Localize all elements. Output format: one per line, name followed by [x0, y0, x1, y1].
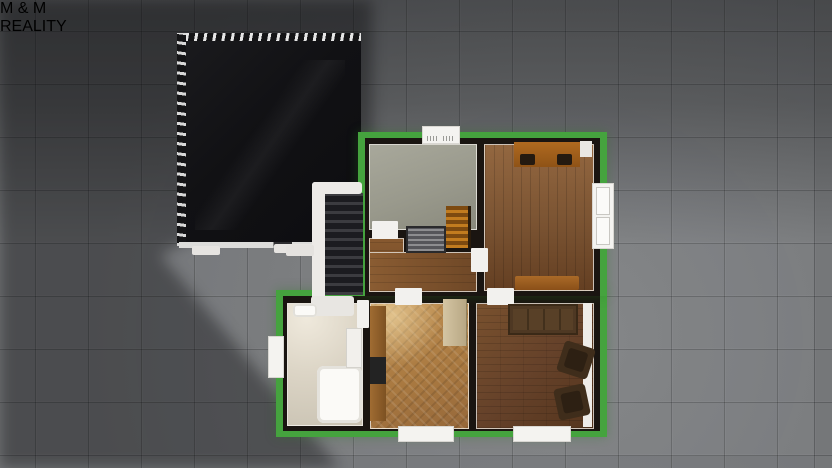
roof-ridge-trim-left	[177, 33, 186, 246]
bedroom-window	[592, 183, 614, 249]
bench	[515, 276, 579, 290]
bedroom-wall-highlight	[580, 141, 592, 157]
exterior-stairs-railing-left	[312, 182, 325, 302]
floorplan-render-scene: M & M REALITY	[0, 0, 832, 468]
kitchen-corner-counter	[440, 386, 467, 430]
kitchen-door	[395, 288, 422, 305]
kitchen-tall-cabinet	[443, 299, 467, 346]
brand-letter-m-right: M	[33, 0, 46, 17]
window-pane	[596, 187, 610, 215]
roof-ridge-trim-top	[177, 33, 361, 41]
sofa-cushions	[513, 309, 573, 330]
chair	[557, 154, 572, 165]
living-room-window	[513, 426, 571, 442]
brand-logo-wordmark: M & M	[0, 0, 67, 18]
sink	[293, 304, 317, 317]
brand-logo: M & M REALITY	[0, 0, 67, 36]
bedroom-door	[471, 248, 488, 272]
interior-stairs-down	[406, 226, 446, 253]
exterior-stairs-ledge	[286, 245, 314, 256]
gray-room-window	[422, 126, 460, 144]
interior-stairs-up	[446, 206, 471, 248]
living-room-door	[487, 288, 514, 305]
brand-reality-banner: REALITY	[0, 18, 67, 36]
exterior-stairs	[325, 193, 363, 295]
bathroom-cabinet	[346, 328, 362, 368]
brand-ampersand: &	[18, 0, 29, 17]
roof-eave-tab	[192, 246, 220, 255]
bathroom-window	[268, 336, 284, 378]
chair	[520, 154, 535, 165]
window-pane	[596, 217, 610, 245]
radiator-icon	[443, 136, 455, 141]
brand-letter-m-left: M	[0, 0, 13, 17]
hallway-floor-horizontal	[369, 252, 477, 292]
exterior-stairs-landing	[311, 296, 354, 316]
gray-room-door	[372, 221, 398, 239]
radiator-icon	[427, 136, 439, 141]
armchair	[553, 383, 591, 421]
bathroom-door	[357, 300, 369, 328]
stove	[370, 357, 386, 384]
sofa	[508, 304, 578, 335]
bathtub	[317, 366, 362, 423]
desk	[514, 142, 580, 167]
